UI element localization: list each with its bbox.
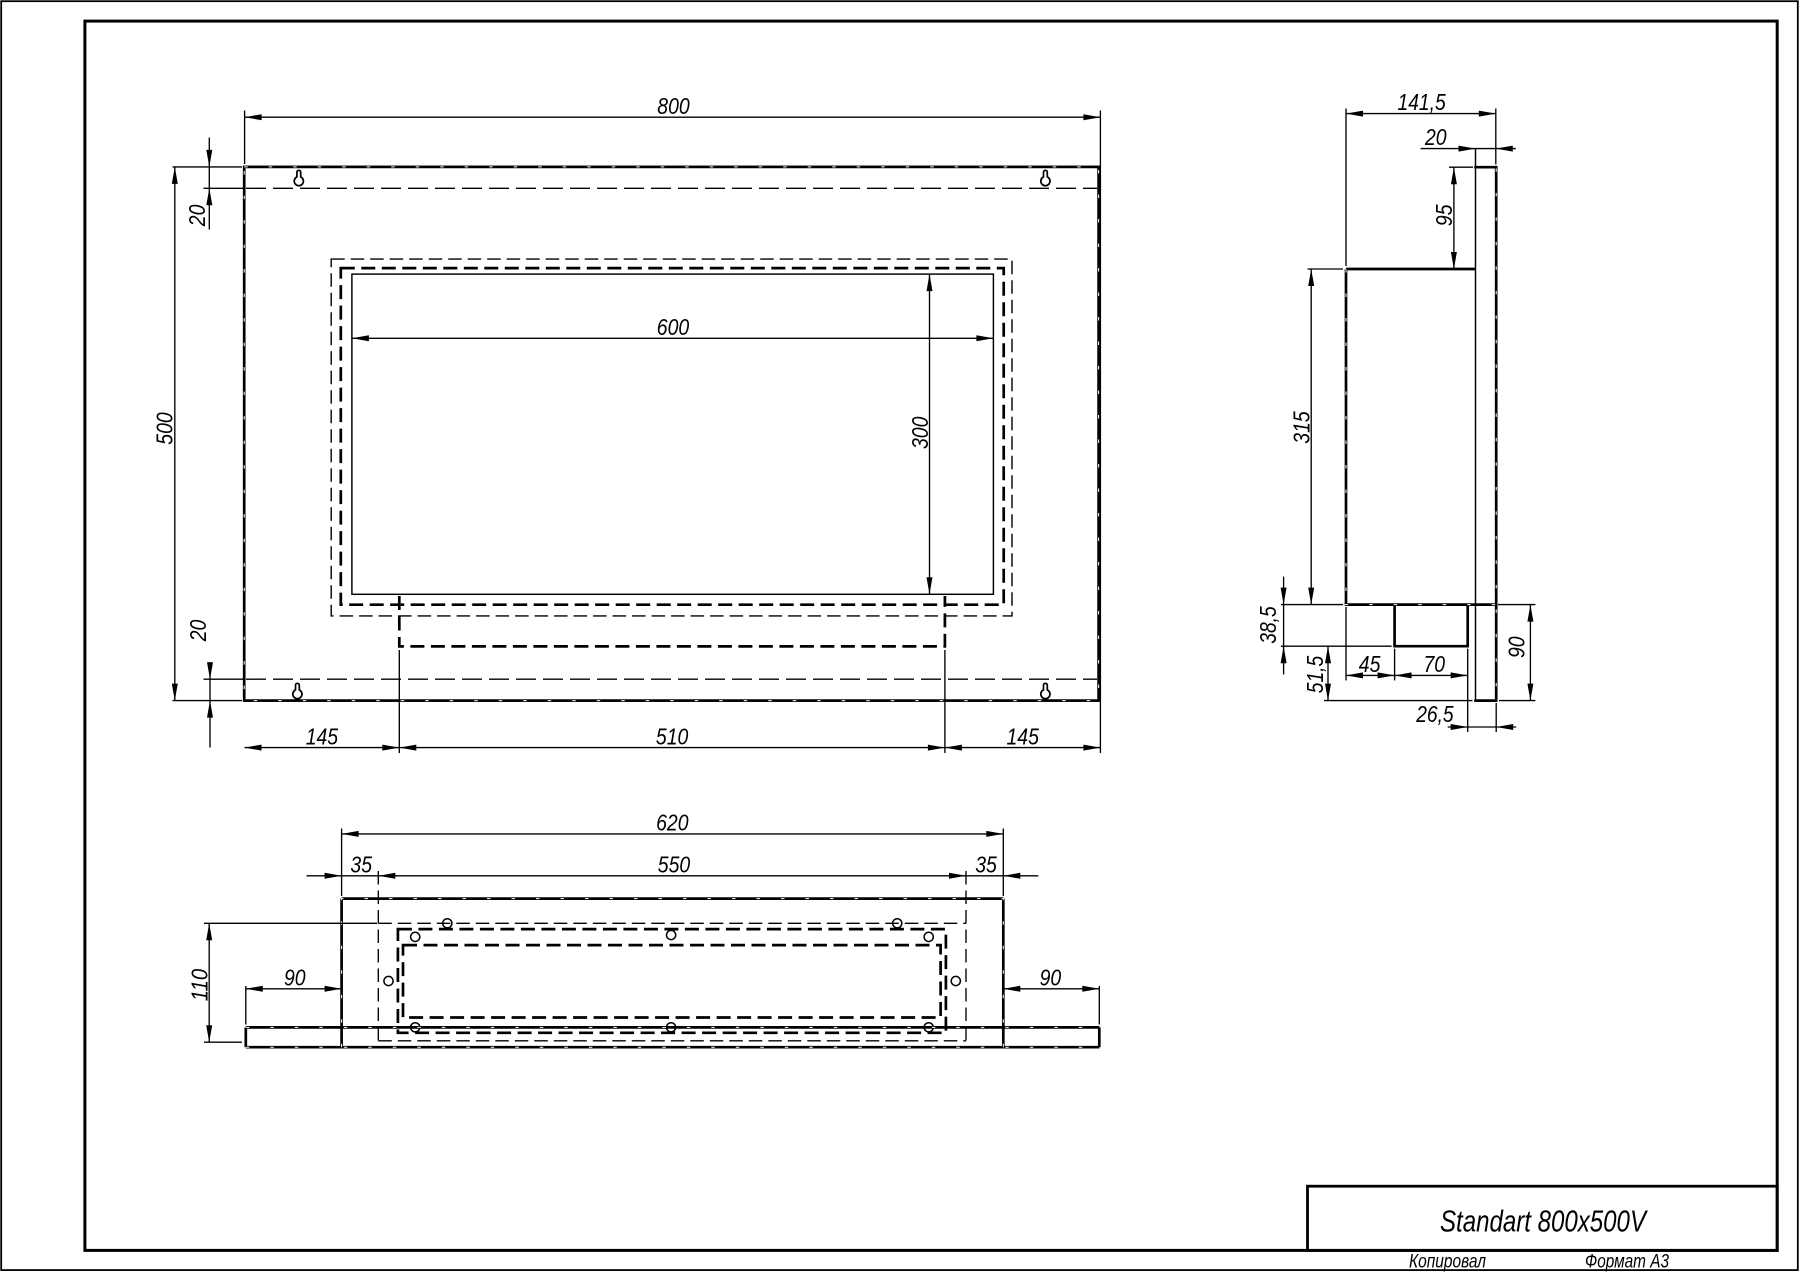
svg-text:35: 35 (975, 852, 997, 878)
svg-text:550: 550 (658, 852, 691, 878)
svg-text:90: 90 (284, 965, 306, 991)
svg-text:500: 500 (151, 412, 177, 445)
svg-text:95: 95 (1431, 204, 1457, 226)
svg-text:800: 800 (657, 93, 690, 119)
svg-text:20: 20 (184, 204, 210, 227)
svg-text:Копировал: Копировал (1409, 1251, 1486, 1272)
svg-text:300: 300 (907, 416, 933, 449)
svg-text:45: 45 (1359, 651, 1381, 677)
svg-text:110: 110 (186, 969, 212, 1002)
svg-text:70: 70 (1424, 651, 1446, 677)
svg-text:510: 510 (656, 723, 689, 749)
svg-text:90: 90 (1040, 965, 1062, 991)
svg-text:145: 145 (306, 723, 339, 749)
svg-text:Standart 800x500V: Standart 800x500V (1440, 1205, 1648, 1239)
svg-text:600: 600 (657, 314, 690, 340)
svg-text:20: 20 (1424, 124, 1447, 150)
svg-text:145: 145 (1007, 723, 1040, 749)
svg-text:26,5: 26,5 (1415, 701, 1453, 727)
svg-text:141,5: 141,5 (1398, 89, 1446, 115)
svg-text:51,5: 51,5 (1302, 656, 1328, 694)
svg-text:620: 620 (656, 810, 689, 836)
svg-text:38,5: 38,5 (1255, 606, 1281, 644)
svg-text:Формат А3: Формат А3 (1585, 1251, 1669, 1272)
svg-text:90: 90 (1504, 636, 1530, 658)
svg-text:315: 315 (1288, 411, 1314, 444)
svg-text:35: 35 (350, 852, 372, 878)
svg-text:20: 20 (185, 620, 211, 643)
